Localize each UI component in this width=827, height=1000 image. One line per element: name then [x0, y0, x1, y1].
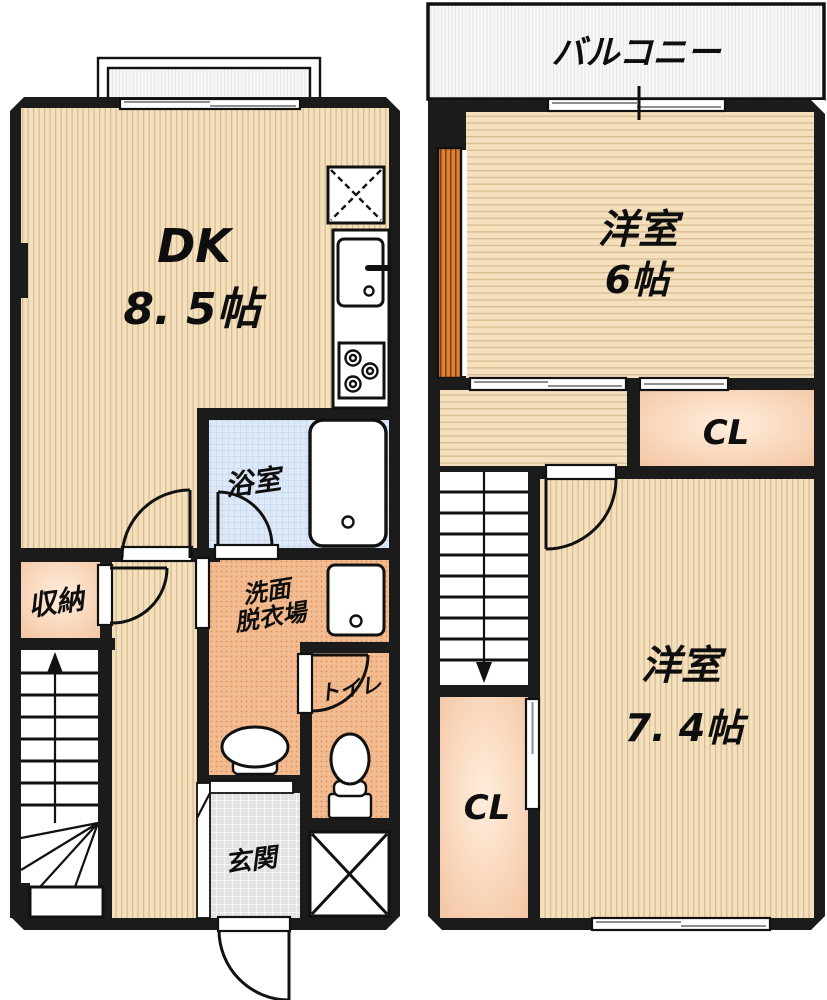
window-balcony: [548, 99, 725, 111]
wall-toilet-top: [300, 642, 389, 653]
window-bottom: [592, 918, 770, 930]
room-size-western6: 6帖: [605, 258, 675, 302]
door-opening-western74: [546, 465, 616, 479]
door-opening-entrance: [218, 917, 290, 931]
stairs-stub-wall: [10, 883, 30, 918]
room-label-dk: DK: [157, 219, 234, 273]
wall-storage-bottom: [10, 638, 115, 650]
floorplan-canvas: DK 8. 5帖 浴室 洗面 脱衣場 トイレ 玄関 収納 バルコニー: [0, 0, 827, 1000]
stairs-top-edge: [428, 466, 528, 472]
wall: [728, 378, 825, 390]
room-label-closet-lower: CL: [464, 788, 511, 828]
wall: [428, 378, 470, 390]
washing-machine-drain: [351, 616, 362, 627]
accent-strip: [438, 148, 461, 378]
door-opening-bath: [215, 545, 278, 559]
staircase-area: [21, 650, 98, 887]
hallway-floor: [112, 562, 197, 918]
floorplan-drawing: DK 8. 5帖 浴室 洗面 脱衣場 トイレ 玄関 収納 バルコニー: [0, 0, 827, 1000]
room-western74-floor: [540, 479, 814, 918]
wall-stairs2-right: [528, 479, 540, 697]
wall-bath-top: [197, 408, 400, 420]
entrance-step: [210, 781, 293, 793]
wall-hall-closet: [627, 390, 640, 467]
room-label-balcony: バルコニー: [551, 33, 721, 73]
door-opening-toilet: [298, 654, 312, 713]
kitchen-sink-icon: [338, 239, 383, 306]
floor2-plan: バルコニー: [428, 4, 825, 930]
door-opening-dk: [122, 547, 192, 561]
wall-toilet-bottom: [300, 818, 389, 832]
door-swing-entrance: [219, 930, 289, 1000]
window-dk: [120, 99, 300, 109]
sliding-door-washroom: [196, 558, 209, 628]
bathtub-drain: [343, 517, 354, 528]
door-opening-storage: [98, 565, 112, 625]
toilet-icon: [329, 734, 371, 818]
wall-stairs-right: [98, 650, 110, 823]
wall: [528, 466, 546, 479]
wall-stairs2-bottom: [428, 685, 540, 697]
window-bay-glass: [108, 68, 310, 100]
room-label-closet-upper: CL: [703, 413, 750, 453]
stairs-landing: [30, 887, 103, 917]
hallway2-floor: [440, 390, 627, 466]
wall: [616, 466, 825, 479]
window-hall-opening: [470, 378, 626, 390]
room-size-western74: 7. 4帖: [625, 706, 750, 750]
wall: [626, 378, 640, 390]
room-label-western6: 洋室: [598, 207, 684, 253]
floor1-plan: DK 8. 5帖 浴室 洗面 脱衣場 トイレ 玄関 収納: [10, 58, 400, 1000]
wash-basin-icon: [222, 727, 288, 774]
wall-notch: [10, 243, 28, 298]
room-label-western74: 洋室: [641, 643, 727, 689]
room-size-dk: 8. 5帖: [123, 284, 267, 335]
sink-drain: [365, 287, 374, 296]
